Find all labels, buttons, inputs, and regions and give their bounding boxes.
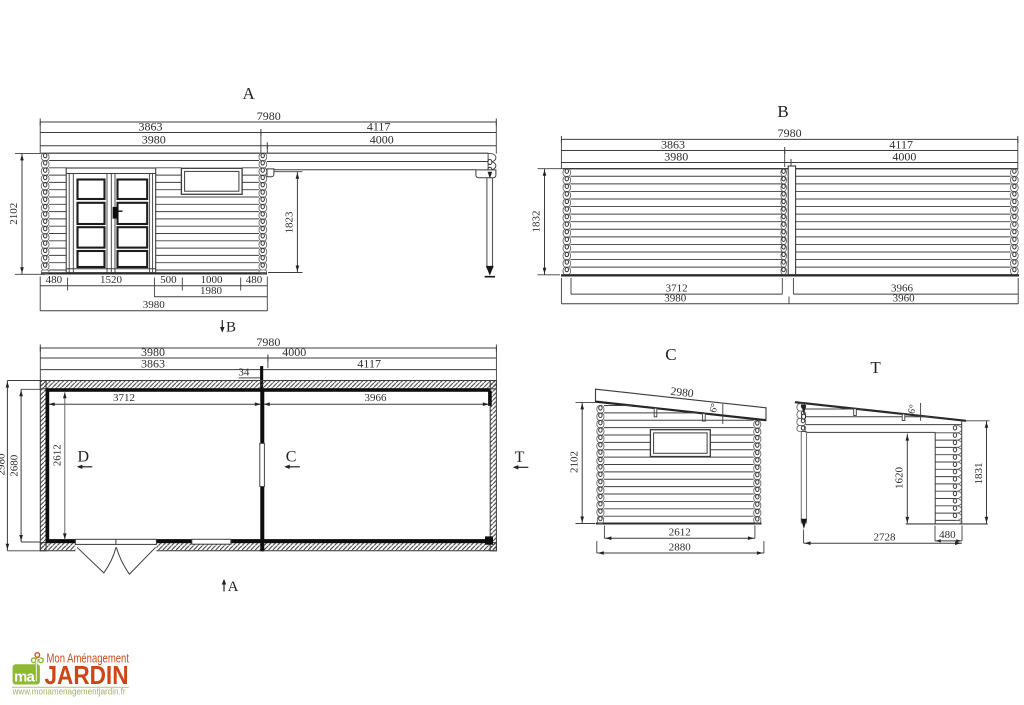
svg-text:B: B — [777, 102, 788, 121]
svg-text:T: T — [515, 449, 525, 466]
svg-text:www.monamenagementjardin.fr: www.monamenagementjardin.fr — [12, 686, 126, 696]
svg-text:3980: 3980 — [143, 299, 166, 311]
svg-text:1520: 1520 — [100, 274, 123, 286]
svg-text:3960: 3960 — [893, 292, 916, 304]
svg-text:C: C — [665, 345, 676, 364]
svg-text:3980: 3980 — [664, 149, 688, 163]
svg-text:4000: 4000 — [892, 149, 916, 163]
svg-text:2102: 2102 — [568, 451, 580, 473]
svg-text:4000: 4000 — [282, 345, 306, 359]
svg-text:A: A — [242, 84, 255, 103]
svg-text:480: 480 — [46, 274, 63, 286]
svg-text:3863: 3863 — [141, 356, 165, 370]
svg-text:480: 480 — [939, 529, 956, 541]
svg-text:1832: 1832 — [531, 211, 543, 233]
svg-text:7980: 7980 — [256, 335, 280, 349]
svg-text:7980: 7980 — [257, 109, 281, 123]
svg-text:2980: 2980 — [0, 453, 8, 476]
svg-text:480: 480 — [246, 274, 263, 286]
svg-text:D: D — [78, 449, 90, 466]
svg-text:4117: 4117 — [357, 356, 381, 370]
svg-text:a: a — [27, 669, 36, 686]
svg-text:34: 34 — [238, 367, 250, 379]
svg-text:2612: 2612 — [669, 527, 691, 539]
svg-text:3980: 3980 — [664, 292, 687, 304]
svg-text:3712: 3712 — [113, 392, 135, 404]
svg-text:B: B — [226, 320, 236, 336]
svg-text:3863: 3863 — [139, 119, 163, 133]
svg-text:2612: 2612 — [51, 444, 63, 466]
svg-text:3980: 3980 — [142, 133, 166, 147]
svg-text:3966: 3966 — [365, 392, 388, 404]
svg-text:1620: 1620 — [893, 467, 905, 490]
svg-text:2728: 2728 — [874, 532, 897, 544]
svg-text:4000: 4000 — [370, 133, 394, 147]
svg-text:2980: 2980 — [670, 386, 694, 400]
svg-text:4117: 4117 — [367, 119, 391, 133]
svg-text:T: T — [870, 358, 881, 377]
svg-text:7980: 7980 — [778, 126, 802, 140]
svg-text:1823: 1823 — [284, 211, 296, 234]
svg-text:1980: 1980 — [200, 285, 223, 297]
svg-text:A: A — [228, 579, 239, 595]
svg-text:2680: 2680 — [9, 454, 21, 477]
svg-text:2102: 2102 — [8, 203, 20, 225]
svg-text:2880: 2880 — [669, 541, 692, 553]
svg-text:C: C — [286, 449, 297, 466]
svg-text:m: m — [14, 669, 27, 686]
svg-text:1831: 1831 — [973, 463, 985, 485]
svg-text:500: 500 — [160, 274, 177, 286]
